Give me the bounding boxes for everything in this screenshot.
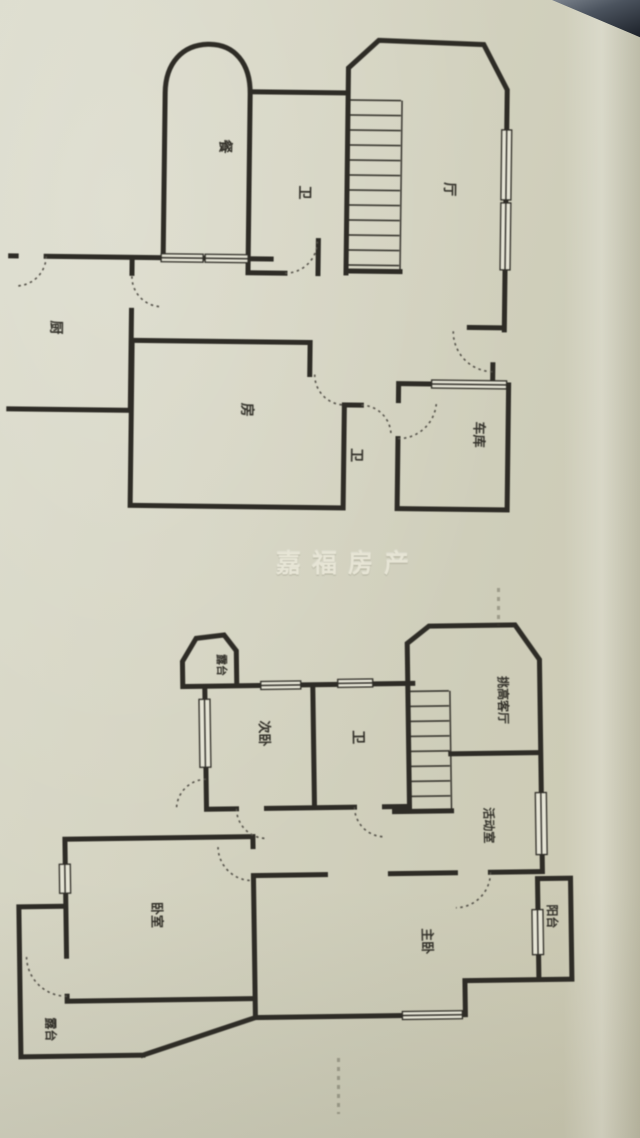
room-label-garage: 车库: [470, 421, 486, 447]
floorplan-photo: 餐 卫 厅 厨 房 卫 车库 嘉福房产: [0, 0, 640, 1138]
floor1-plan: 餐 卫 厅 厨 房 卫 车库: [5, 19, 531, 523]
room-label-highceiling-living: 挑高客厅: [496, 676, 512, 724]
room-label-second-bedroom: 次卧: [256, 720, 272, 746]
agency-watermark: 嘉福房产: [276, 544, 476, 580]
floor2-windows: [57, 677, 550, 1025]
room-label-bedroom: 卧室: [148, 902, 164, 928]
photo-corner-shadow: [530, 0, 640, 60]
floor1-labels: 餐 卫 厅 厨 房 卫 车库: [46, 136, 490, 463]
room-label-terrace-top: 露台: [215, 654, 229, 676]
floor1-windows: [160, 126, 512, 389]
room-label-room: 房: [238, 403, 255, 417]
room-label-terrace-bottom: 露台: [43, 1017, 58, 1041]
fold-smudge-lower: [337, 1058, 340, 1114]
room-label-activity-room: 活动室: [482, 807, 498, 843]
room-label-dining: 餐: [216, 138, 233, 154]
room-label-kitchen: 厨: [47, 320, 63, 334]
room-label-hall: 厅: [441, 182, 457, 196]
floor2-plan: 露台 次卧 卫 挑高客厅 活动室 卧室 主卧 阳台 露台: [12, 616, 580, 1072]
floor2-doors: [24, 775, 492, 996]
room-label-balcony: 阳台: [545, 904, 560, 928]
floor2-stairs: [409, 691, 452, 812]
room-label-master-bedroom: 主卧: [419, 928, 435, 954]
room-label-bath: 卫: [349, 730, 365, 744]
floor1-stairs: [347, 100, 402, 272]
room-label-bath-small: 卫: [348, 448, 364, 462]
room-label-bath-top: 卫: [296, 185, 312, 199]
fold-smudge-middle: [497, 588, 500, 626]
floor1-walls: [5, 36, 513, 510]
